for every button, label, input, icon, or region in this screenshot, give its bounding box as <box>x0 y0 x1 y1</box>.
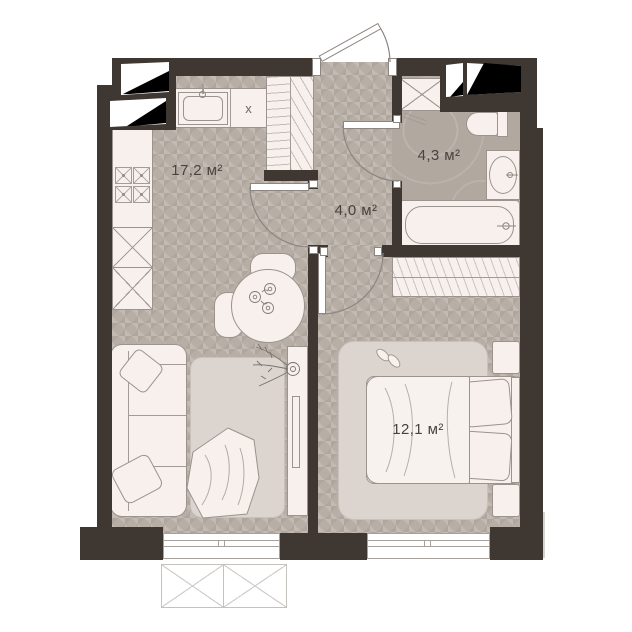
balcony-panel <box>162 565 224 607</box>
vent-shaft-block-left <box>112 58 176 130</box>
hall-area-label: 4,0 м² <box>314 203 398 219</box>
living-room-rug <box>190 357 285 518</box>
entrance-door-jamb <box>388 58 397 76</box>
bedroom-door-jamb <box>374 247 382 256</box>
living-window-tick <box>218 541 219 546</box>
bedroom-door-jamb <box>320 247 328 256</box>
wall-living-bedroom <box>308 245 318 533</box>
stove-burner <box>133 186 150 203</box>
wardrobe-rail-line <box>393 277 519 278</box>
nightstand <box>492 484 520 517</box>
bedroom-window-tick <box>424 541 425 546</box>
balcony-panel <box>224 565 286 607</box>
bathtub-inner <box>405 206 514 244</box>
wall-bottom-left-corner <box>80 527 163 560</box>
wall-right-main <box>520 128 543 560</box>
floor-plan: х <box>0 0 632 632</box>
bedroom-wardrobe <box>392 257 520 297</box>
nightstand <box>492 341 520 374</box>
bedroom-area-label: 12,1 м² <box>376 422 460 438</box>
entrance-door-jamb <box>312 58 321 76</box>
bathroom-sink-basin <box>489 156 517 194</box>
bedroom-window-tick <box>430 541 431 546</box>
dining-table <box>231 269 305 343</box>
entrance-threshold <box>320 62 388 78</box>
hall-closet <box>266 76 314 171</box>
wall-bathroom-south <box>392 245 520 257</box>
tv <box>292 396 300 468</box>
stove-burner <box>133 167 150 184</box>
toilet-bowl <box>466 112 498 136</box>
wall-left <box>97 85 112 537</box>
living-window-frame-line <box>164 546 279 547</box>
living-room-door-leaf <box>250 183 309 191</box>
living-window-frame-line <box>164 540 279 541</box>
washing-machine <box>400 78 444 111</box>
bathroom-area-label: 4,3 м² <box>397 148 481 164</box>
wall-bottom-middle <box>280 533 367 560</box>
toilet-tank <box>497 110 508 137</box>
stove-burner <box>115 167 132 184</box>
sofa-cushion-seam <box>128 415 186 416</box>
kitchen-cabinet-label: х <box>245 101 252 116</box>
stove-burner <box>115 186 132 203</box>
living-window-tick <box>224 541 225 546</box>
wall-bottom-right-corner <box>490 527 543 560</box>
bedroom-door-leaf <box>318 253 326 314</box>
bathroom-door-jamb <box>393 115 401 123</box>
kitchen-sink-basin <box>183 96 223 121</box>
wall-right-upper <box>520 58 537 128</box>
vent-shaft-block-right <box>440 58 522 112</box>
bathroom-door-jamb <box>393 180 401 188</box>
hall-closet-left-section <box>267 77 290 170</box>
hall-closet-right-section <box>290 77 313 170</box>
hall-floor <box>308 76 392 246</box>
bedroom-window-frame-line <box>368 540 489 541</box>
kitchen-base-cabinet <box>112 227 153 268</box>
kitchen-cabinet-x: х <box>230 88 267 128</box>
entrance-door-leaf <box>319 23 382 62</box>
kitchen-faucet-knob-icon <box>199 91 206 98</box>
balcony-outline <box>161 564 287 608</box>
living-room-area-label: 17,2 м² <box>155 163 239 179</box>
bed-headboard <box>511 377 520 483</box>
bedroom-window-frame-line <box>368 546 489 547</box>
living-room-door-jamb <box>309 246 318 254</box>
bathroom-door-leaf <box>343 121 400 129</box>
living-room-door-jamb <box>309 180 318 188</box>
kitchen-base-cabinet <box>112 267 153 310</box>
